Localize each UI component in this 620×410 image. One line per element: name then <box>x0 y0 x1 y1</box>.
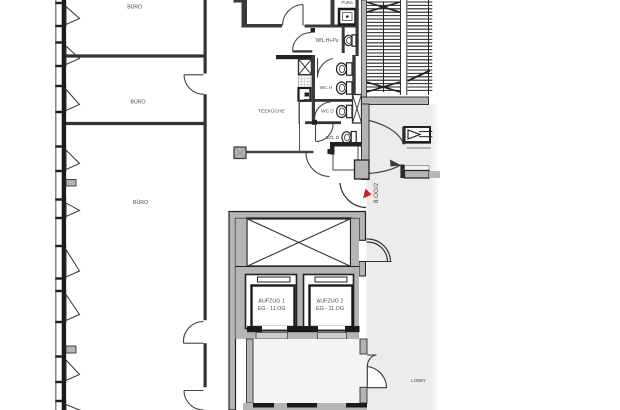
svg-text:WfL.H+Pu: WfL.H+Pu <box>316 38 339 44</box>
svg-text:WC H: WC H <box>320 85 333 91</box>
svg-text:BÜRO: BÜRO <box>127 4 142 11</box>
svg-text:BÜRO: BÜRO <box>131 98 146 105</box>
svg-text:LOBBY: LOBBY <box>411 378 426 383</box>
svg-text:BÜRO: BÜRO <box>133 199 148 206</box>
svg-text:EG - 11.OG: EG - 11.OG <box>316 306 344 312</box>
svg-text:AUFZUG 1: AUFZUG 1 <box>258 298 285 304</box>
svg-text:TEEKÜCHE: TEEKÜCHE <box>258 108 285 115</box>
svg-text:WC D: WC D <box>321 109 334 115</box>
svg-text:AUFZUG 2: AUFZUG 2 <box>317 298 344 304</box>
svg-text:8.OG/2: 8.OG/2 <box>373 182 380 203</box>
svg-text:PuRa: PuRa <box>341 0 353 5</box>
svg-text:EG - 11.OG: EG - 11.OG <box>258 306 286 312</box>
